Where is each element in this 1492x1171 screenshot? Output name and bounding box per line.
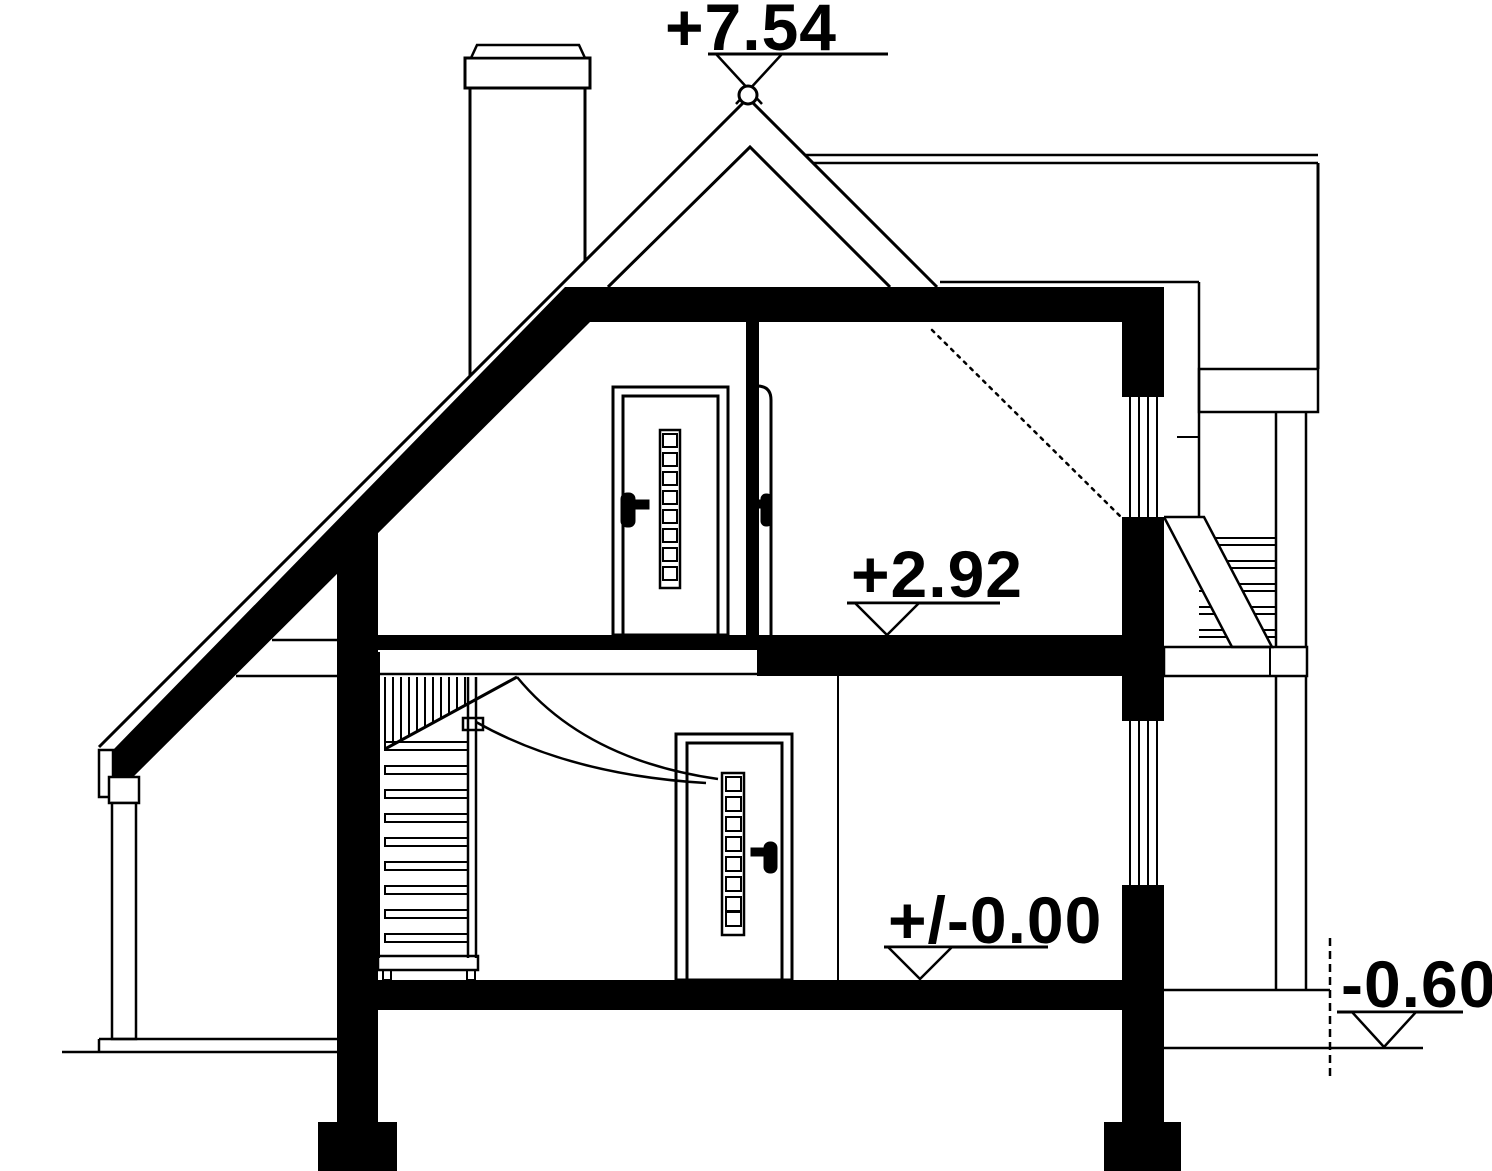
porch-post-cap: [109, 777, 139, 803]
exterior-stair-stringer: [1164, 517, 1272, 647]
house-section-drawing: +7.54 +2.92 +/-0.00 -0.60: [0, 0, 1492, 1171]
elevation-marker-roof-peak: +7.54: [665, 0, 888, 104]
door-handle-stub: [633, 500, 649, 509]
upper-floor-slab-thin: [378, 635, 757, 650]
door-glazing-panes: [726, 777, 741, 926]
upper-floor-slab: [757, 635, 1164, 676]
right-footing: [1104, 1122, 1181, 1171]
porch-post: [112, 803, 136, 1039]
roof-gable-inner: [608, 147, 890, 287]
ground-floor-door: [676, 734, 792, 980]
interior-staircase: [378, 652, 718, 980]
stair-base-leg-right: [467, 970, 475, 980]
ridge-point: [739, 86, 757, 104]
terrace-slab-edge: [1164, 647, 1307, 676]
left-footing: [318, 1122, 397, 1171]
door-glazing-panes: [663, 434, 677, 580]
chimney-cap: [465, 58, 590, 88]
elevation-value: +2.92: [851, 537, 1023, 611]
door-handle-stub: [751, 848, 765, 856]
elevation-marker-ground-floor: +/-0.00: [884, 883, 1102, 979]
door-handle-icon: [761, 494, 772, 526]
stair-treads: [385, 742, 468, 942]
stair-handrail: [385, 677, 517, 749]
left-wall: [337, 525, 378, 1122]
door-handle-stub: [753, 500, 762, 508]
door-handle-icon: [621, 493, 635, 527]
upper-floor-door: [613, 387, 728, 635]
stair-curved-rail-inner: [476, 722, 706, 783]
chimney-cap-top: [471, 45, 585, 58]
ground-floor-slab: [337, 980, 1164, 1010]
headroom-dotted-line: [932, 330, 1120, 516]
slab-edges: [236, 640, 838, 980]
right-foundation-wall: [1122, 1010, 1164, 1122]
stair-base-plate: [378, 956, 478, 970]
rear-fascia-band: [1199, 369, 1318, 412]
elevation-value: -0.60: [1341, 947, 1492, 1021]
porch: [62, 777, 337, 1052]
ceiling-slab: [565, 287, 1164, 322]
elevation-marker-upper-floor: +2.92: [847, 537, 1023, 635]
elevation-marker-terrain: -0.60: [1337, 947, 1492, 1047]
stair-base-leg-left: [383, 970, 391, 980]
roof-slope-right-outer: [748, 98, 937, 287]
partition-wall: [746, 322, 759, 635]
door-handle-icon: [764, 842, 777, 873]
door-leaf: [623, 396, 718, 635]
